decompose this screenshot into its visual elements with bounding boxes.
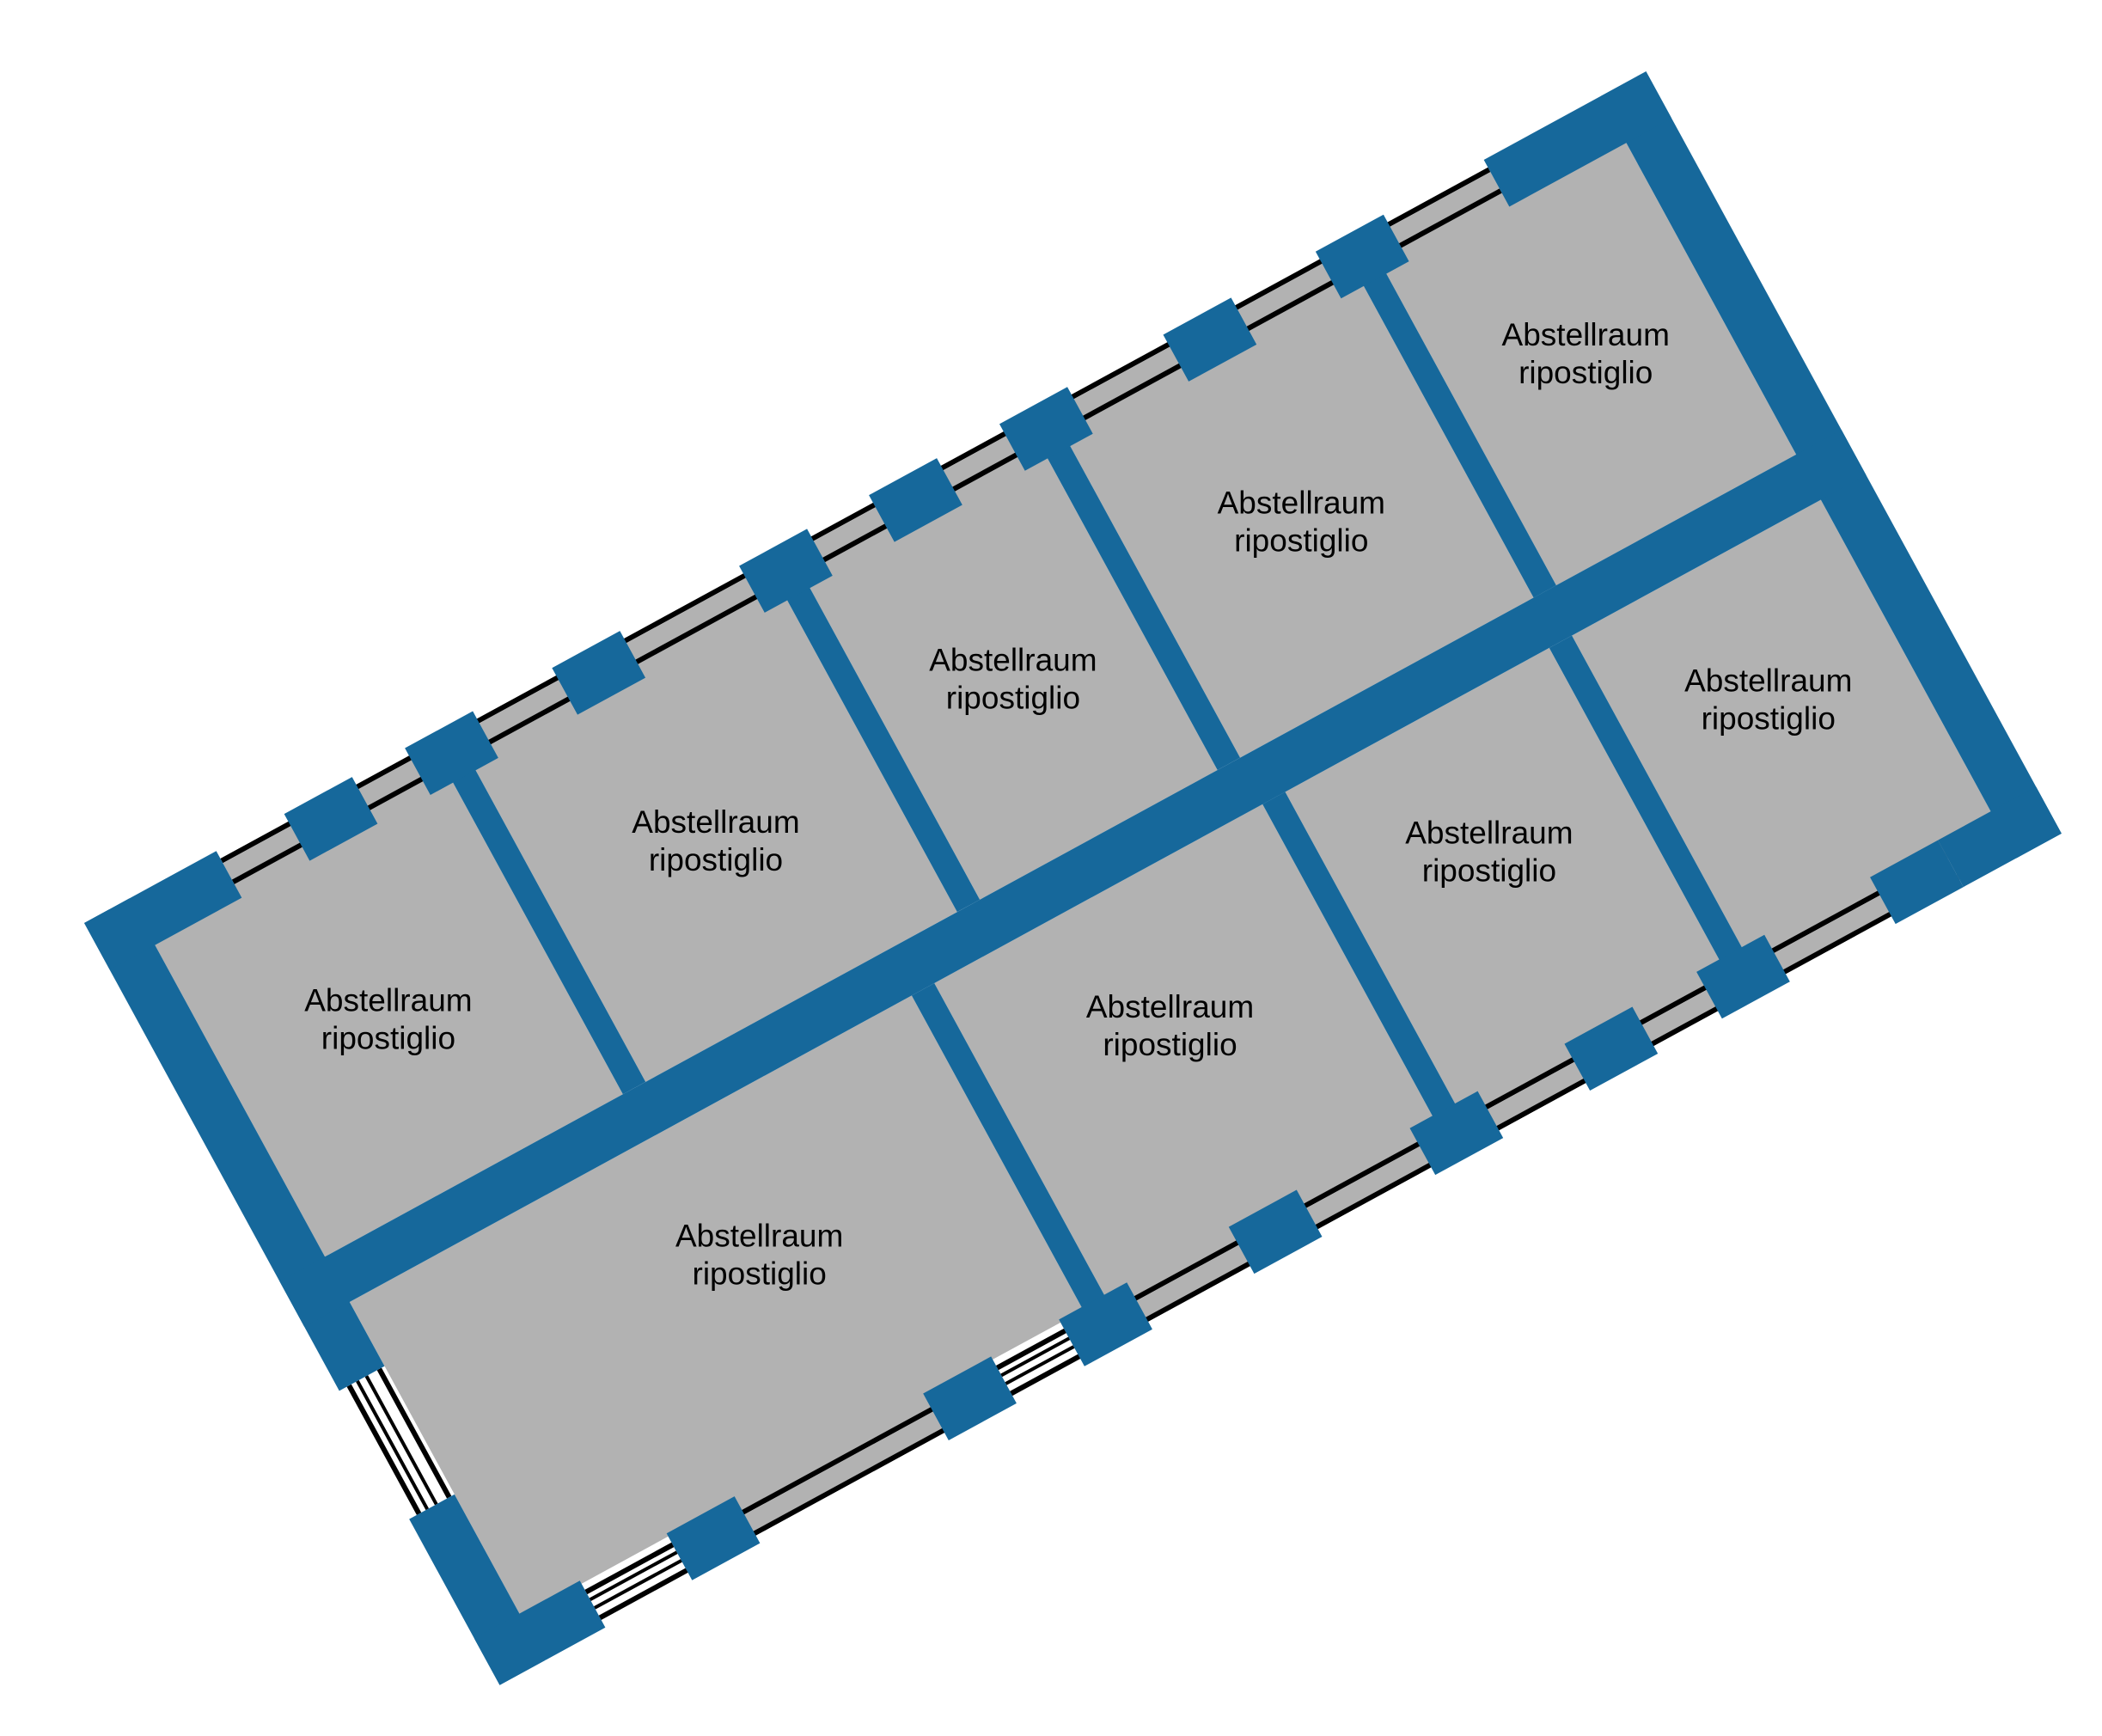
room-label: Abstellraumripostiglio bbox=[675, 1217, 843, 1292]
room-label-line1: Abstellraum bbox=[1405, 815, 1573, 853]
room-label: Abstellraumripostiglio bbox=[929, 641, 1097, 716]
room-label: Abstellraumripostiglio bbox=[1684, 663, 1852, 737]
room-label-line2: ripostiglio bbox=[1218, 522, 1385, 559]
building: AbstellraumripostiglioAbstellraumriposti… bbox=[84, 71, 2062, 1685]
room-label: Abstellraumripostiglio bbox=[1218, 484, 1385, 559]
room-label: Abstellraumripostiglio bbox=[632, 804, 799, 878]
room-label-line2: ripostiglio bbox=[632, 841, 799, 879]
room-label-line1: Abstellraum bbox=[632, 804, 799, 841]
room-label-line1: Abstellraum bbox=[1502, 316, 1670, 354]
room-label-line2: ripostiglio bbox=[929, 679, 1097, 717]
room-label-line1: Abstellraum bbox=[1684, 663, 1852, 700]
room-label-line1: Abstellraum bbox=[675, 1217, 843, 1255]
room-label-line2: ripostiglio bbox=[675, 1255, 843, 1293]
room-label: Abstellraumripostiglio bbox=[1086, 988, 1254, 1063]
room-label-line1: Abstellraum bbox=[1218, 484, 1385, 522]
room-label-line2: ripostiglio bbox=[1086, 1026, 1254, 1064]
room-label-line2: ripostiglio bbox=[1684, 700, 1852, 737]
room-label-line2: ripostiglio bbox=[1405, 852, 1573, 889]
room-label-line2: ripostiglio bbox=[304, 1019, 472, 1057]
room-label-line1: Abstellraum bbox=[929, 641, 1097, 679]
room-label-line2: ripostiglio bbox=[1502, 354, 1670, 392]
room-label-line1: Abstellraum bbox=[304, 982, 472, 1020]
room-label: Abstellraumripostiglio bbox=[304, 982, 472, 1057]
room-label-line1: Abstellraum bbox=[1086, 988, 1254, 1026]
floorplan-canvas: AbstellraumripostiglioAbstellraumriposti… bbox=[0, 0, 2102, 1736]
room-label: Abstellraumripostiglio bbox=[1502, 316, 1670, 391]
room-label: Abstellraumripostiglio bbox=[1405, 815, 1573, 889]
